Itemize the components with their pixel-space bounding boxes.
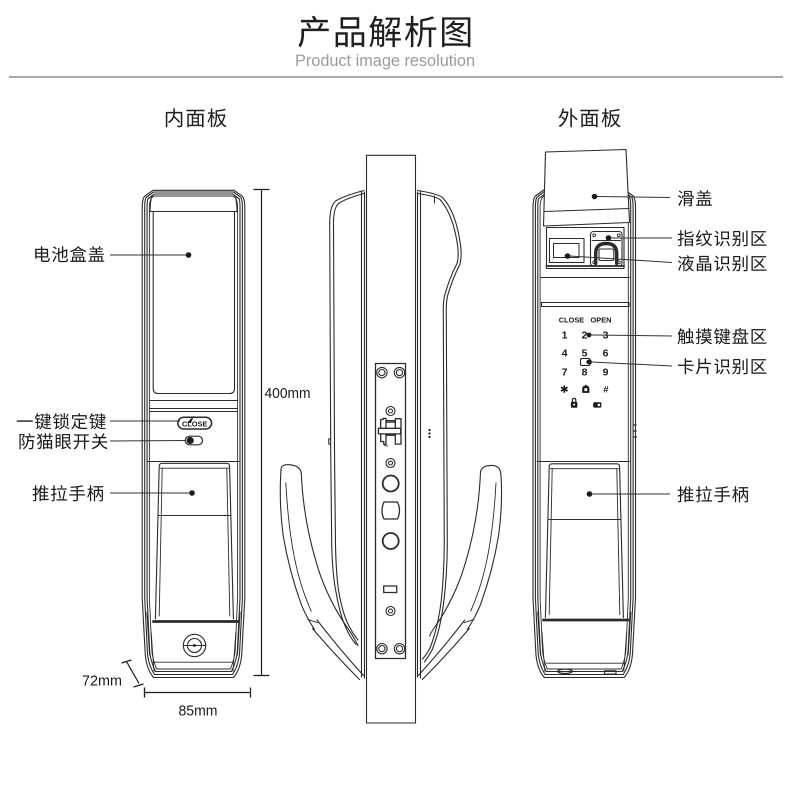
svg-text:5: 5	[582, 348, 588, 360]
svg-text:CLOSE: CLOSE	[559, 316, 585, 325]
svg-text:72mm: 72mm	[82, 673, 122, 690]
svg-text:85mm: 85mm	[179, 703, 218, 720]
svg-text:OPEN: OPEN	[591, 316, 612, 325]
svg-text:4: 4	[562, 348, 568, 360]
svg-text:#: #	[603, 384, 609, 395]
svg-text:6: 6	[603, 348, 609, 360]
svg-text:CLOSE: CLOSE	[182, 419, 208, 428]
svg-text:1: 1	[562, 330, 568, 342]
svg-text:8: 8	[582, 367, 588, 379]
svg-text:9: 9	[603, 367, 609, 379]
svg-text:7: 7	[562, 367, 568, 379]
svg-text:400mm: 400mm	[265, 385, 311, 402]
svg-text:Product image resolution: Product image resolution	[295, 52, 475, 70]
